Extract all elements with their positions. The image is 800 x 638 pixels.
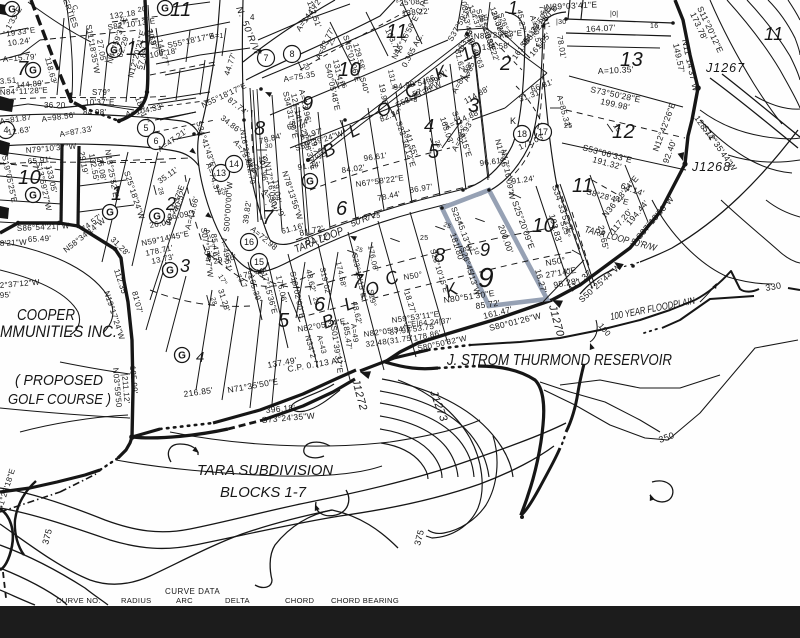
svg-text:7: 7 <box>263 53 268 63</box>
svg-text:G: G <box>29 66 37 77</box>
svg-text:G: G <box>166 266 174 277</box>
svg-text:84.98': 84.98' <box>83 108 107 117</box>
svg-text:G: G <box>161 4 169 15</box>
svg-text:20: 20 <box>137 6 146 14</box>
svg-text:6: 6 <box>336 198 348 220</box>
svg-text:RADIUS: RADIUS <box>121 596 152 605</box>
svg-text:A=1: A=1 <box>210 33 224 40</box>
svg-text:CHORD: CHORD <box>285 596 315 605</box>
svg-text:164.07': 164.07' <box>586 22 616 34</box>
svg-text:18: 18 <box>517 129 527 139</box>
svg-text:25: 25 <box>420 235 428 242</box>
svg-text:MMUNITIES INC.: MMUNITIES INC. <box>0 323 117 341</box>
svg-text:TARA SUBDIVISION: TARA SUBDIVISION <box>197 462 333 479</box>
svg-text:4: 4 <box>424 116 435 136</box>
svg-text:3: 3 <box>180 256 191 276</box>
svg-text:14: 14 <box>229 159 239 169</box>
svg-text:25: 25 <box>564 123 572 130</box>
svg-text:12: 12 <box>612 121 635 143</box>
svg-text:( PROPOSED: ( PROPOSED <box>15 372 103 389</box>
svg-text:J. STROM THURMOND RESERVOIR: J. STROM THURMOND RESERVOIR <box>446 352 672 369</box>
svg-text:G: G <box>29 191 37 202</box>
svg-text:5: 5 <box>428 141 440 163</box>
svg-text:CHORD BEARING: CHORD BEARING <box>331 596 399 605</box>
svg-text:CURVE NO.: CURVE NO. <box>56 596 101 605</box>
svg-text:S79°: S79° <box>92 88 111 97</box>
svg-text:25: 25 <box>372 213 380 220</box>
svg-text:16: 16 <box>650 23 658 30</box>
svg-text:11: 11 <box>170 0 192 21</box>
svg-text:A=10.35': A=10.35' <box>598 64 634 76</box>
svg-text:9: 9 <box>480 240 491 260</box>
svg-text:COOPER: COOPER <box>17 307 75 324</box>
svg-text:16: 16 <box>244 237 254 247</box>
svg-text:|0|: |0| <box>610 11 618 18</box>
svg-text:8'21"W: 8'21"W <box>0 238 27 248</box>
svg-text:4: 4 <box>196 349 205 366</box>
svg-text:J1267: J1267 <box>705 61 745 75</box>
svg-text:36.20: 36.20 <box>44 101 66 110</box>
svg-text:A=8: A=8 <box>404 97 418 104</box>
svg-text:CURVE DATA: CURVE DATA <box>165 587 220 596</box>
svg-text:G: G <box>178 351 186 362</box>
svg-text:11: 11 <box>764 24 784 44</box>
svg-text:DELTA: DELTA <box>225 596 250 605</box>
svg-text:15: 15 <box>254 257 264 267</box>
svg-text:95': 95' <box>0 290 12 300</box>
svg-text:65.49': 65.49' <box>28 234 52 244</box>
svg-text:BLOCKS 1-7: BLOCKS 1-7 <box>220 484 307 501</box>
svg-text:5: 5 <box>278 310 290 332</box>
svg-text:G: G <box>106 208 114 219</box>
svg-text:K: K <box>510 116 516 126</box>
svg-text:4: 4 <box>250 13 255 22</box>
svg-text:8: 8 <box>289 49 294 59</box>
svg-text:ARC: ARC <box>176 596 193 605</box>
svg-text:GOLF COURSE ): GOLF COURSE ) <box>8 391 111 408</box>
svg-text:10'37"E: 10'37"E <box>85 98 115 107</box>
svg-text:5: 5 <box>143 123 148 133</box>
svg-text:G: G <box>306 177 314 188</box>
